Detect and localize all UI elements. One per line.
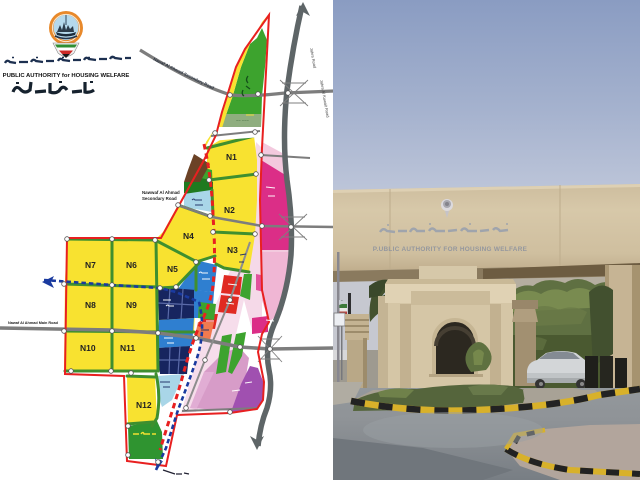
svg-text:Nawaf Al Ahmad Main Road: Nawaf Al Ahmad Main Road (8, 321, 59, 325)
svg-text:N7: N7 (85, 260, 96, 270)
svg-text:N2: N2 (224, 205, 235, 215)
svg-text:Secondary Road: Secondary Road (142, 196, 177, 201)
svg-text:N6: N6 (126, 260, 137, 270)
svg-text:P.UBLIC AUTHORITY FOR HOUSING: P.UBLIC AUTHORITY FOR HOUSING WELFARE (373, 246, 528, 253)
svg-text:N8: N8 (85, 300, 96, 310)
svg-text:N5: N5 (167, 264, 178, 274)
svg-text:N4: N4 (183, 231, 194, 241)
svg-text:N9: N9 (126, 300, 137, 310)
svg-text:Nawwaf Al Ahmad: Nawwaf Al Ahmad (142, 190, 180, 195)
svg-text:N12: N12 (136, 400, 152, 410)
svg-text:N10: N10 (80, 343, 96, 353)
svg-text:N3: N3 (227, 245, 238, 255)
svg-text:~~ ~~~: ~~ ~~~ (236, 118, 249, 123)
svg-text:PUBLIC AUTHORITY for HOUSING W: PUBLIC AUTHORITY for HOUSING WELFARE (3, 73, 130, 79)
svg-text:N11: N11 (120, 343, 135, 353)
svg-text:N1: N1 (226, 152, 237, 162)
